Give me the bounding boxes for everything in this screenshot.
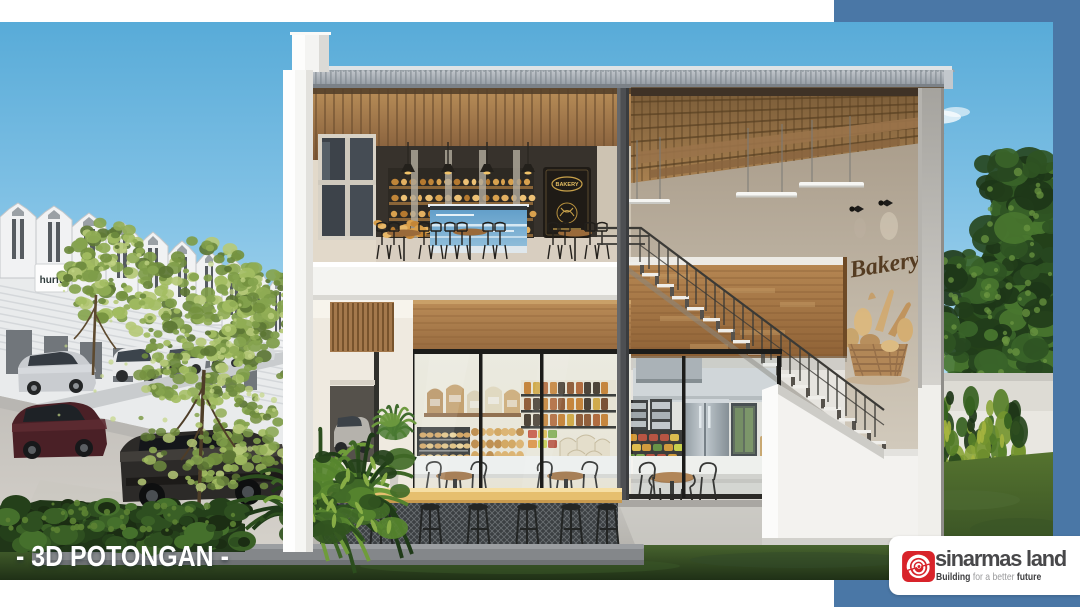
svg-text:BAKERY: BAKERY: [555, 182, 578, 188]
